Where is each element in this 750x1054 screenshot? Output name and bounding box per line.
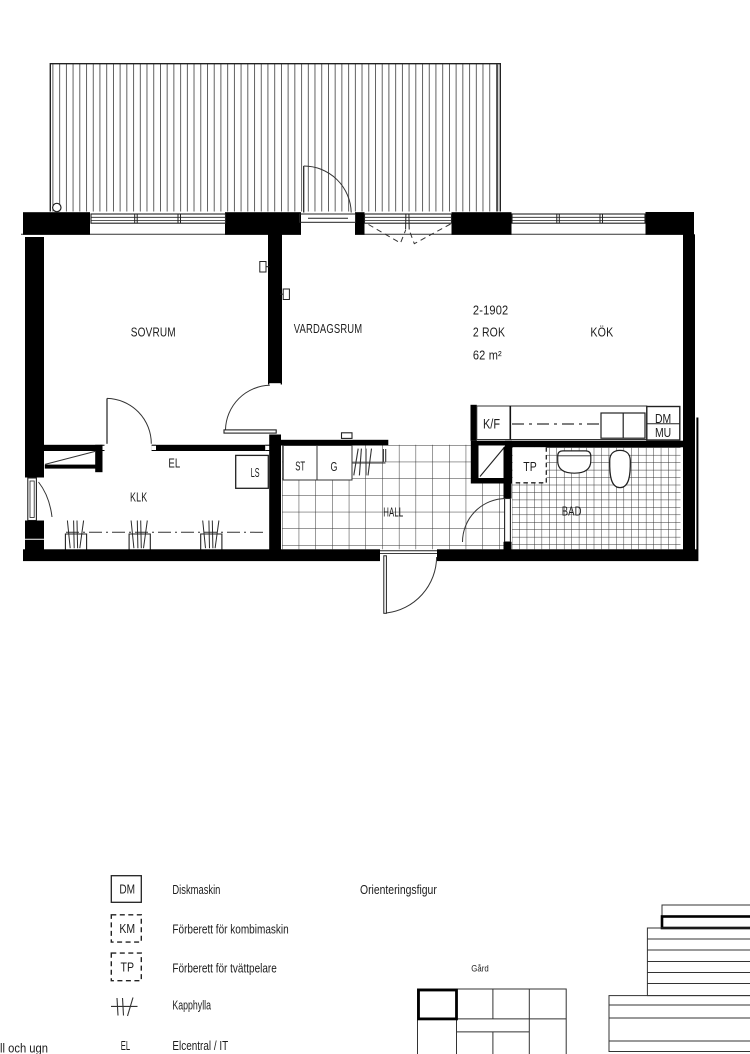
svg-text:DM: DM [655,412,671,426]
svg-text:MU: MU [655,426,671,440]
svg-text:Elcentral / IT: Elcentral / IT [172,1039,228,1053]
svg-text:2 ROK: 2 ROK [473,325,505,340]
svg-text:LS: LS [251,466,260,480]
svg-text:SOVRUM: SOVRUM [131,325,176,340]
svg-text:EL: EL [168,456,180,470]
svg-text:ST: ST [295,460,305,474]
svg-text:KM: KM [119,922,135,936]
svg-text:Gård: Gård [471,964,488,975]
svg-text:K/F: K/F [483,417,500,432]
svg-text:EL: EL [121,1039,130,1053]
svg-text:Orienteringsfigur: Orienteringsfigur [360,883,437,897]
svg-text:TP: TP [523,460,536,474]
svg-text:Diskmaskin: Diskmaskin [172,883,220,897]
svg-text:HALL: HALL [383,505,403,520]
svg-text:BAD: BAD [562,504,582,519]
svg-text:DM: DM [119,883,135,897]
svg-text:G: G [331,460,338,474]
svg-text:KÖK: KÖK [590,325,613,340]
svg-text:2-1902: 2-1902 [473,303,509,318]
svg-text:Kapphylla: Kapphylla [172,999,211,1013]
svg-text:62 m²: 62 m² [473,348,502,363]
svg-text:ll och ugn: ll och ugn [0,1042,48,1054]
svg-text:KLK: KLK [130,490,147,505]
svg-text:Förberett för tvättpelare: Förberett för tvättpelare [172,962,276,976]
svg-text:Förberett för kombimaskin: Förberett för kombimaskin [172,923,288,937]
svg-text:TP: TP [121,961,135,975]
svg-text:VARDAGSRUM: VARDAGSRUM [294,321,363,336]
